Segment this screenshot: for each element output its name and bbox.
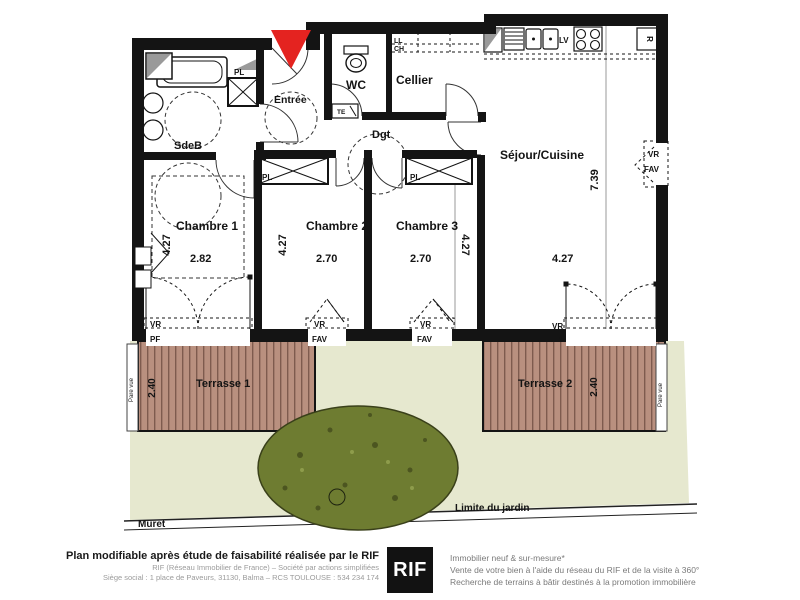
terrace-label-1: Terrasse 1 [196,378,250,390]
window-label-vr: VR [552,322,563,331]
dim-chambre2-height: 4.27 [277,234,289,255]
room-label-dgt: Dgt [372,129,391,141]
room-label-chambre2: Chambre 2 [306,219,368,233]
terrace-2 [483,341,665,431]
dim-chambre3-height: 4.27 [459,234,471,255]
footer-service-2: Vente de votre bien à l'aide du réseau d… [450,564,699,576]
bush [258,406,458,530]
room-label-sdeb: SdeB [174,140,202,152]
pare-vue-label-right: Pare vue [658,382,664,407]
window-label-vr: VR [648,150,659,159]
window-label-fav: FAV [312,335,328,344]
pare-vue-label-left: Pare vue [129,377,135,402]
room-label-entree: Entrée [274,94,307,106]
window-label-vr: VR [314,320,325,329]
closet-label-pl: PL [410,173,420,182]
room-label-cellier: Cellier [396,73,433,87]
window-label-pf: PF [150,335,160,344]
footer-service-3: Recherche de terrains à bâtir destinés à… [450,576,699,588]
sink-drainer [504,28,524,50]
dim-chambre1-width: 2.82 [190,253,211,265]
floor-plan: SdeB Entrée WC Cellier Dgt Séjour/Cuisin… [0,0,800,545]
room-label-chambre1: Chambre 1 [176,219,238,233]
footer: Plan modifiable après étude de faisabili… [0,543,800,600]
washbasin [143,93,163,113]
footer-service-1: Immobilier neuf & sur-mesure* [450,552,699,564]
window-label-fav: FAV [417,335,433,344]
window-label-vr: VR [150,320,161,329]
footer-legal-1: RIF (Réseau Immobilier de France) – Soci… [55,563,379,573]
footer-legal-2: Siège social : 1 place de Paveurs, 31130… [55,573,379,583]
dim-terrasse1-depth: 2.40 [147,378,158,398]
washbasin [143,120,163,140]
garden-limit-label: Limite du jardin [455,503,529,514]
equip-label-te: TE [337,109,346,116]
window-label-vr: VR [420,320,431,329]
room-label-chambre3: Chambre 3 [396,219,458,233]
dim-sejour-width: 4.27 [552,253,573,265]
equip-label-lv: LV [559,36,569,45]
rif-logo: RIF [387,547,433,593]
toilet-tank [344,46,368,54]
closet-label-pl: PL [234,68,244,77]
dim-chambre2-width: 2.70 [316,253,337,265]
window-label-pf: PF [556,335,566,344]
equip-label-ll: LL [394,38,403,45]
west-window-frame [135,270,151,288]
dim-sejour-height: 7.39 [589,169,601,190]
equip-label-fridge: R [645,36,654,42]
footer-services-block: Immobilier neuf & sur-mesure* Vente de v… [450,552,699,588]
west-window-frame [135,247,151,265]
footer-disclaimer: Plan modifiable après étude de faisabili… [55,550,379,563]
terrace-label-2: Terrasse 2 [518,378,572,390]
room-label-sejour: Séjour/Cuisine [500,148,584,162]
muret-label: Muret [138,519,166,530]
dim-terrasse2-depth: 2.40 [589,377,600,397]
dim-chambre3-width: 2.70 [410,253,431,265]
equip-label-ch: CH [394,46,404,53]
room-label-wc: WC [346,78,366,92]
footer-legal-block: Plan modifiable après étude de faisabili… [55,550,379,582]
dim-chambre1-height: 4.27 [161,234,173,255]
window-label-fav: FAV [644,165,660,174]
closet-label-pl: PL [262,173,272,182]
floor-plan-page: SdeB Entrée WC Cellier Dgt Séjour/Cuisin… [0,0,800,600]
